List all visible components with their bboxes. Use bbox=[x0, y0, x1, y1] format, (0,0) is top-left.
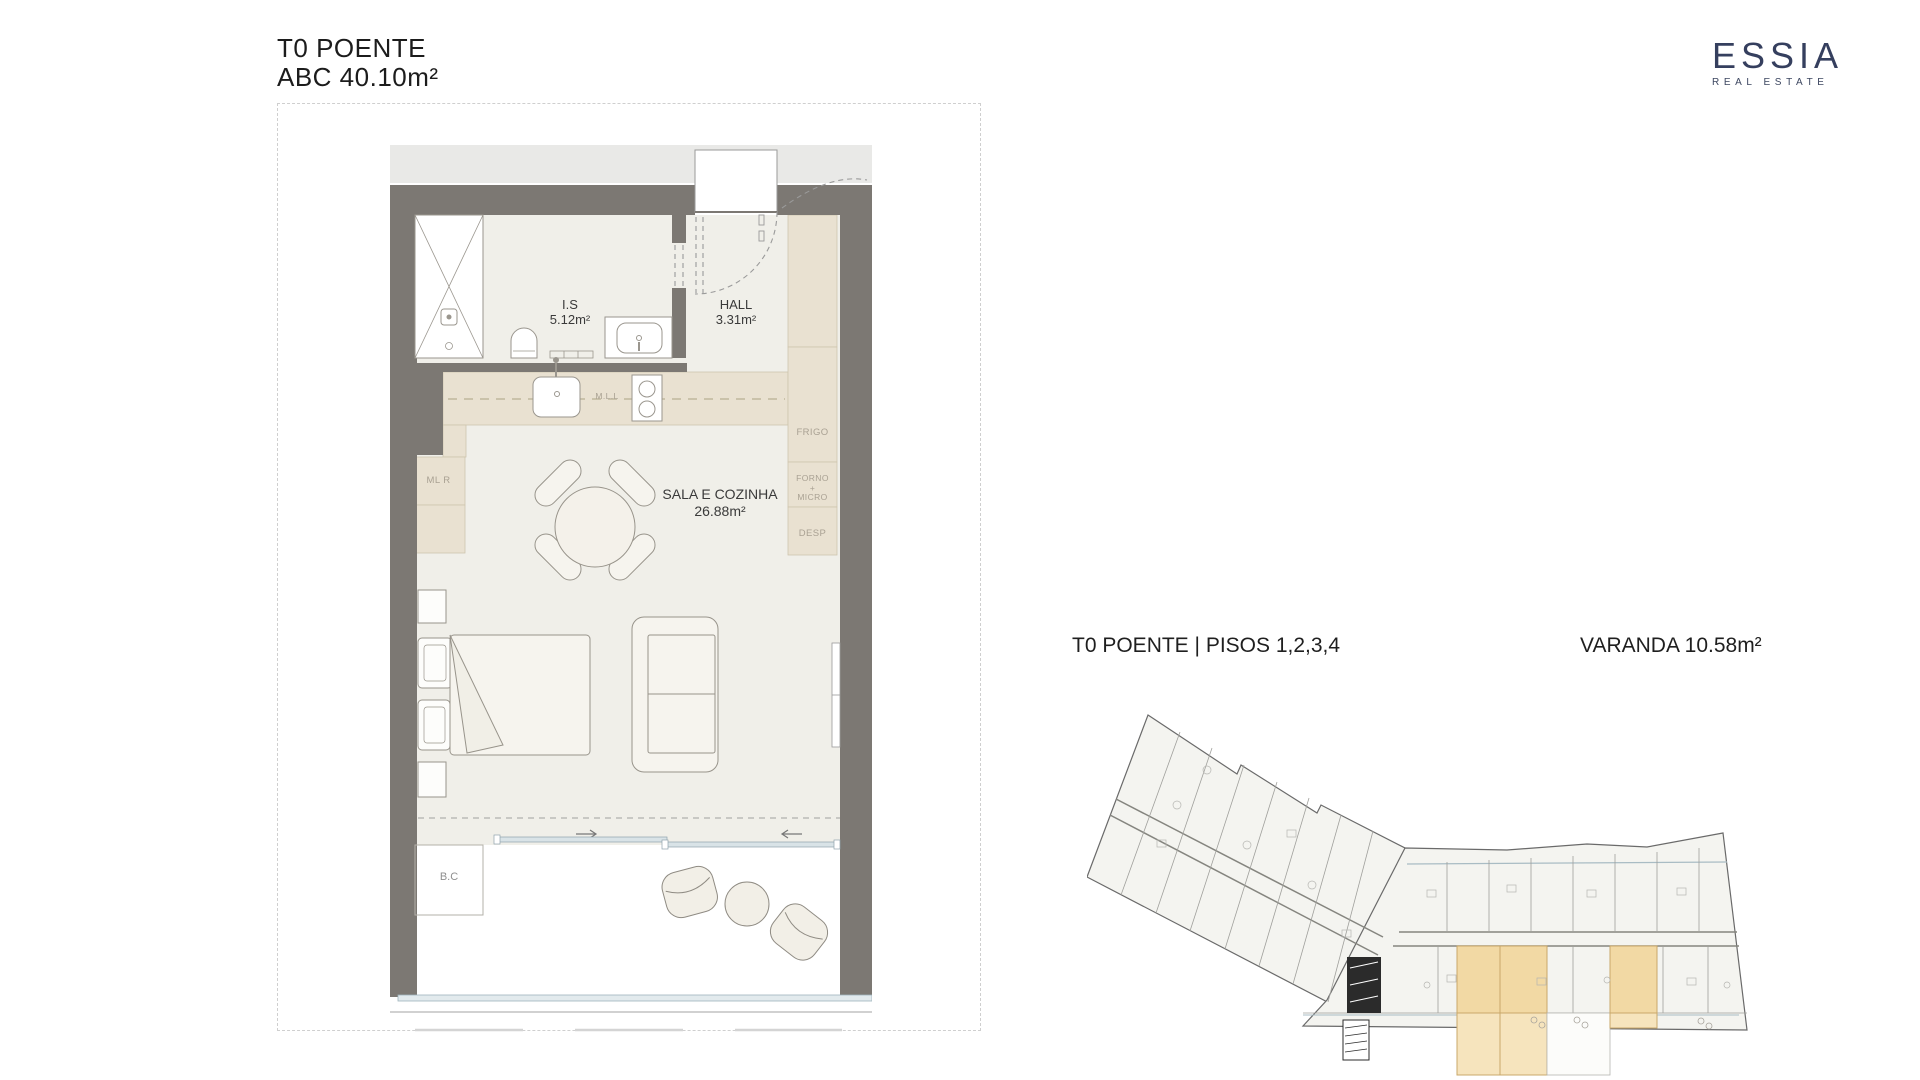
dining-table bbox=[555, 487, 635, 567]
top-wall-left bbox=[390, 185, 695, 215]
fridge-cabinet bbox=[788, 347, 837, 462]
room-area: 26.88m² bbox=[630, 503, 810, 520]
room-label-sala: SALA E COZINHA 26.88m² bbox=[630, 486, 810, 520]
lounge-chair-2 bbox=[764, 898, 833, 966]
overview-title: T0 POENTE | PISOS 1,2,3,4 bbox=[1072, 634, 1340, 658]
unit-a-highlight bbox=[1457, 946, 1500, 1013]
room-name: HALL bbox=[690, 297, 782, 312]
floor-plan-drawing bbox=[390, 145, 872, 1050]
hall-wardrobe bbox=[788, 215, 837, 347]
unit-a-balcony bbox=[1457, 1013, 1500, 1075]
bathroom-bottom-wall bbox=[390, 363, 687, 372]
room-label-hall: HALL 3.31m² bbox=[690, 297, 782, 327]
label-desp: DESP bbox=[788, 529, 837, 539]
label-bc: B.C bbox=[415, 871, 483, 883]
cooktop bbox=[632, 375, 662, 421]
bathroom-divider-bottom bbox=[672, 288, 686, 358]
balcony-area-label: VARANDA 10.58m² bbox=[1580, 634, 1762, 658]
room-area: 5.12m² bbox=[525, 312, 615, 327]
entrance-door bbox=[695, 150, 777, 212]
kitchen-counter-leg bbox=[443, 425, 466, 457]
nightstand-top bbox=[418, 590, 446, 623]
page-title: T0 POENTE ABC 40.10m² bbox=[277, 34, 439, 92]
right-wall bbox=[840, 185, 872, 997]
bathroom-divider-top bbox=[672, 215, 686, 243]
unit-b-highlight bbox=[1500, 946, 1547, 1013]
room-name: I.S bbox=[525, 297, 615, 312]
building-key-plan bbox=[1087, 710, 1787, 1080]
toilet bbox=[511, 328, 537, 358]
key-plan-drawing bbox=[1087, 710, 1787, 1080]
kitchen-sink bbox=[533, 377, 580, 417]
corridor-strip bbox=[390, 145, 872, 183]
stair-block bbox=[1343, 1020, 1369, 1060]
stair-core bbox=[1343, 957, 1381, 1060]
brand-name: ESSIA bbox=[1712, 38, 1843, 74]
glass-balustrade bbox=[398, 995, 872, 1001]
glass-panel-2 bbox=[665, 842, 838, 847]
left-wall-thick bbox=[417, 370, 443, 455]
label-frigo: FRIGO bbox=[788, 428, 837, 438]
nightstand-bottom bbox=[418, 762, 446, 797]
left-wall bbox=[390, 185, 417, 997]
room-label-is: I.S 5.12m² bbox=[525, 297, 615, 327]
label-mlr: ML R bbox=[412, 476, 465, 486]
unit-c-highlight bbox=[1610, 946, 1657, 1013]
room-name: SALA E COZINHA bbox=[630, 486, 810, 503]
brand-tagline: REAL ESTATE bbox=[1712, 77, 1843, 88]
floor-plan-sheet: T0 POENTE ABC 40.10m² ESSIA REAL ESTATE bbox=[0, 0, 1920, 1080]
balcony-furniture bbox=[659, 863, 834, 966]
label-mll: M.L.L bbox=[583, 392, 631, 402]
unit-c-balcony bbox=[1610, 1013, 1657, 1028]
plan-area-title: ABC 40.10m² bbox=[277, 63, 439, 92]
label-forno-micro: FORNO + MICRO bbox=[788, 474, 837, 503]
brand-logo: ESSIA REAL ESTATE bbox=[1712, 38, 1843, 88]
main-floor-plan: I.S 5.12m² HALL 3.31m² SALA E COZINHA 26… bbox=[390, 145, 872, 1050]
balcony-table bbox=[725, 882, 769, 926]
storage-cabinet bbox=[412, 505, 465, 553]
room-area: 3.31m² bbox=[690, 312, 782, 327]
plan-type-title: T0 POENTE bbox=[277, 34, 439, 63]
glass-panel-1 bbox=[497, 837, 667, 842]
